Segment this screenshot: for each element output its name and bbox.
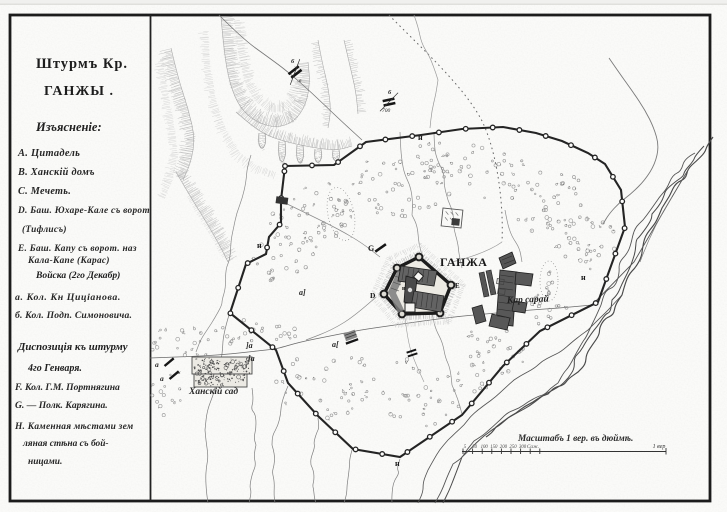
- svg-text:]а: ]а: [247, 354, 255, 363]
- svg-text:G: G: [368, 244, 374, 253]
- svg-text:D: D: [370, 291, 376, 300]
- svg-text:(Тифлисъ): (Тифлисъ): [22, 224, 67, 235]
- svg-text:F. Кол. Г.М. Портнягина: F. Кол. Г.М. Портнягина: [14, 382, 120, 393]
- svg-text:50: 50: [472, 445, 477, 450]
- svg-text:а: а: [160, 374, 164, 383]
- svg-text:100: 100: [481, 445, 489, 450]
- svg-text:Ханскій сад: Ханскій сад: [188, 386, 238, 397]
- svg-text:а: а: [155, 360, 159, 369]
- svg-text:1 вер: 1 вер: [653, 444, 666, 450]
- svg-text:Диспозиція къ штурму: Диспозиція къ штурму: [17, 341, 128, 353]
- svg-text:а. Кол. Кн Циціанова.: а. Кол. Кн Циціанова.: [15, 292, 121, 303]
- svg-text:300: 300: [519, 445, 527, 450]
- svg-text:Е: Е: [455, 282, 460, 290]
- svg-text:G. — Полк. Карягина.: G. — Полк. Карягина.: [15, 400, 108, 411]
- svg-text:х: х: [177, 370, 181, 376]
- svg-text:В. Ханскій домъ: В. Ханскій домъ: [17, 167, 95, 178]
- svg-text:н: н: [418, 133, 423, 142]
- svg-text:Саж.: Саж.: [527, 444, 539, 450]
- svg-text:150: 150: [490, 445, 498, 450]
- svg-text:Н. Каменная мѣстами зем: Н. Каменная мѣстами зем: [14, 422, 134, 432]
- svg-text:Изъясненіе:: Изъясненіе:: [35, 120, 102, 134]
- svg-text:С. Мечеть.: С. Мечеть.: [18, 186, 71, 197]
- svg-text:Штурмъ Кр.: Штурмъ Кр.: [36, 56, 128, 72]
- svg-text:А. Цитадель: А. Цитадель: [17, 148, 80, 159]
- svg-text:ницами.: ницами.: [28, 457, 62, 467]
- svg-text:н: н: [581, 273, 586, 282]
- svg-text:ГАНЖА: ГАНЖА: [440, 255, 487, 269]
- svg-text:200: 200: [500, 445, 508, 450]
- svg-text:н: н: [257, 241, 262, 250]
- svg-text:Войска (2го Декабр): Войска (2го Декабр): [35, 270, 120, 281]
- svg-text:700: 700: [382, 108, 391, 114]
- svg-text:Масштабъ 1 вер. въ дюймѣ.: Масштабъ 1 вер. въ дюймѣ.: [517, 433, 633, 444]
- svg-text:ГАНЖЫ .: ГАНЖЫ .: [44, 84, 114, 99]
- svg-text:ляная стѣна съ бой-: ляная стѣна съ бой-: [22, 438, 109, 449]
- svg-text:Кар сарай: Кар сарай: [506, 294, 549, 306]
- svg-text:]а: ]а: [245, 341, 253, 350]
- svg-text:н: н: [395, 459, 400, 468]
- svg-text:Е. Баш. Капу съ ворот. наз: Е. Баш. Капу съ ворот. наз: [17, 244, 137, 254]
- svg-text:250: 250: [509, 445, 517, 450]
- svg-text:а]: а]: [299, 288, 306, 297]
- svg-text:4го Генваря.: 4го Генваря.: [27, 363, 82, 374]
- svg-text:D. Баш. Юхаре-Кале съ ворот: D. Баш. Юхаре-Кале съ ворот: [17, 206, 150, 216]
- svg-text:б. Кол. Подп. Симоновича.: б. Кол. Подп. Симоновича.: [15, 310, 132, 321]
- svg-text:v: v: [405, 360, 408, 366]
- svg-text:Кала-Капе (Карас): Кала-Капе (Карас): [27, 255, 110, 266]
